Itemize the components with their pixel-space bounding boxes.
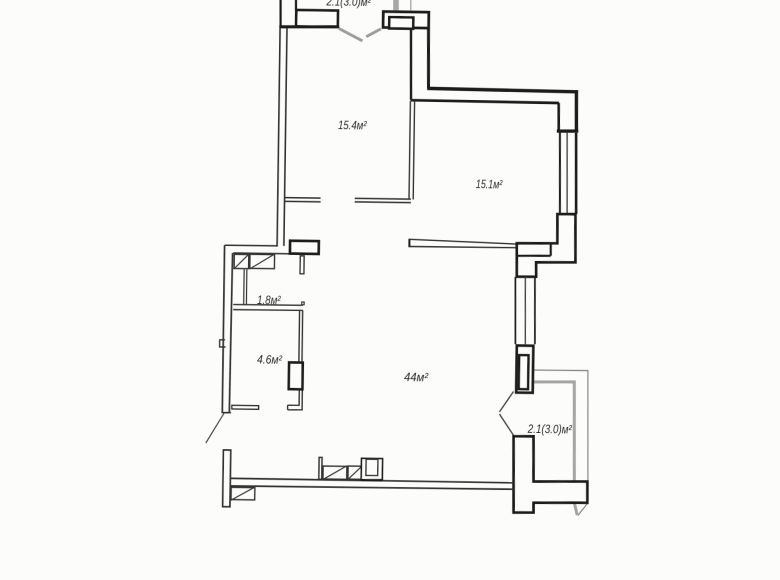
svg-text:44м²: 44м² [404,370,429,384]
svg-text:15.1м²: 15.1м² [476,177,503,191]
svg-text:15.4м²: 15.4м² [338,118,368,132]
svg-text:2.1(3.0)м²: 2.1(3.0)м² [527,422,573,437]
svg-text:4.6м²: 4.6м² [257,352,283,366]
svg-text:2.1(3.0)м²: 2.1(3.0)м² [325,0,371,9]
